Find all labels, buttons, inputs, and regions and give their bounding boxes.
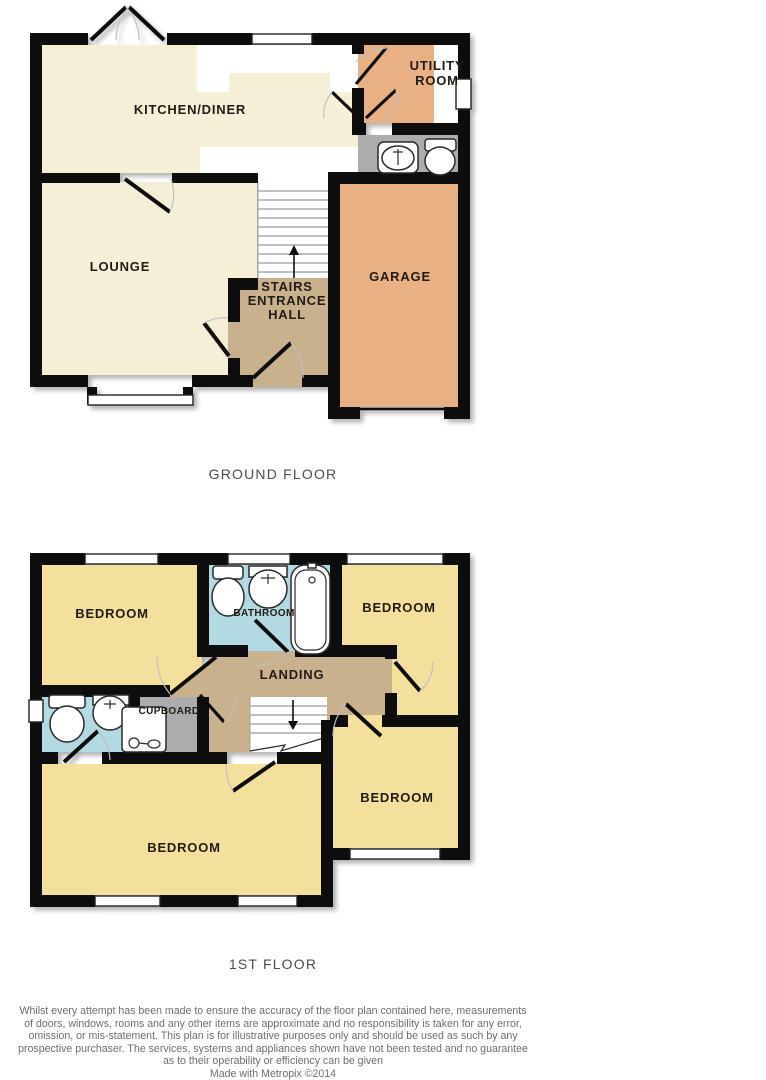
wc-fixtures xyxy=(378,139,456,175)
disclaimer: Whilst every attempt has been made to en… xyxy=(0,1005,546,1080)
disclaimer-line: omission, or mis-statement. This plan is… xyxy=(0,1030,546,1043)
kitchen-french-doors xyxy=(91,7,164,40)
disclaimer-line: prospective purchaser. The services, sys… xyxy=(0,1043,546,1056)
ground-floor-caption: GROUND FLOOR xyxy=(0,466,546,482)
first-floor-caption: 1ST FLOOR xyxy=(0,956,546,972)
kitchen-diner-label: KITCHEN/DINER xyxy=(134,102,246,117)
ensuite-window xyxy=(29,700,43,722)
bedroom-top-right-window xyxy=(347,554,443,564)
disclaimer-line: of doors, windows, rooms and any other i… xyxy=(0,1018,546,1031)
bedroom-bottom-left-label: BEDROOM xyxy=(147,840,221,855)
bedroom-top-left-window xyxy=(85,554,158,564)
bedroom-bottom-right-window xyxy=(350,849,440,859)
lounge-bay-window xyxy=(88,395,193,405)
cupboard-label: CUPBOARD xyxy=(139,706,200,717)
bedroom-top-left-label: BEDROOM xyxy=(75,606,149,621)
disclaimer-line: as to their operability or efficiency ca… xyxy=(0,1055,546,1068)
landing-label: LANDING xyxy=(260,667,325,682)
kitchen-window xyxy=(252,34,312,44)
hall-label-line3: HALL xyxy=(268,307,306,322)
floorplan-drawing: KITCHEN/DINER UTILITY ROOM LOUNGE STAIRS… xyxy=(0,0,766,1080)
landing-bump-floor xyxy=(330,653,392,715)
hall-label-line2: ENTRANCE xyxy=(248,293,327,308)
bath-icon xyxy=(291,563,330,654)
kitchen-floor-step xyxy=(229,73,330,92)
disclaimer-line: Whilst every attempt has been made to en… xyxy=(0,1005,546,1018)
ground-floor-plan: KITCHEN/DINER UTILITY ROOM LOUNGE STAIRS… xyxy=(30,7,471,419)
garage-label: GARAGE xyxy=(369,269,431,284)
bedroom-bottom-right-label: BEDROOM xyxy=(360,790,434,805)
utility-room-label-line2: ROOM xyxy=(415,73,459,88)
ground-stairs-floor xyxy=(258,173,328,278)
bedroom-bottom-right-floor xyxy=(333,715,458,848)
wc-sink-icon xyxy=(378,142,418,173)
bedroom-top-right-label: BEDROOM xyxy=(362,600,436,615)
lounge-floor xyxy=(42,182,257,375)
kitchen-counter-area-bottom xyxy=(200,147,358,173)
bathroom-label: BATHROOM xyxy=(233,608,294,619)
credit-line: Made with Metropix ©2014 xyxy=(0,1068,546,1080)
ground-floor-rooms xyxy=(42,45,458,407)
hall-label-line1: STAIRS xyxy=(261,279,313,294)
first-floor-plan: BEDROOM BATHROOM BEDROOM LANDING CUPBOAR… xyxy=(29,553,470,907)
bedroom-bottom-left-window-2 xyxy=(238,896,297,906)
floorplan-page: KITCHEN/DINER UTILITY ROOM LOUNGE STAIRS… xyxy=(0,0,766,1080)
ensuite-toilet-icon xyxy=(49,695,85,742)
bathroom-window xyxy=(228,554,290,564)
bathroom-sink-icon xyxy=(249,566,287,608)
bedroom-bottom-left-window-1 xyxy=(95,896,160,906)
bedroom-bottom-left-floor xyxy=(42,764,321,895)
lounge-label: LOUNGE xyxy=(90,259,150,274)
bedroom-top-left-floor xyxy=(42,565,202,697)
garage-floor xyxy=(340,184,458,407)
wc-toilet-icon xyxy=(425,139,456,175)
utility-room-label-line1: UTILITY xyxy=(410,58,465,73)
